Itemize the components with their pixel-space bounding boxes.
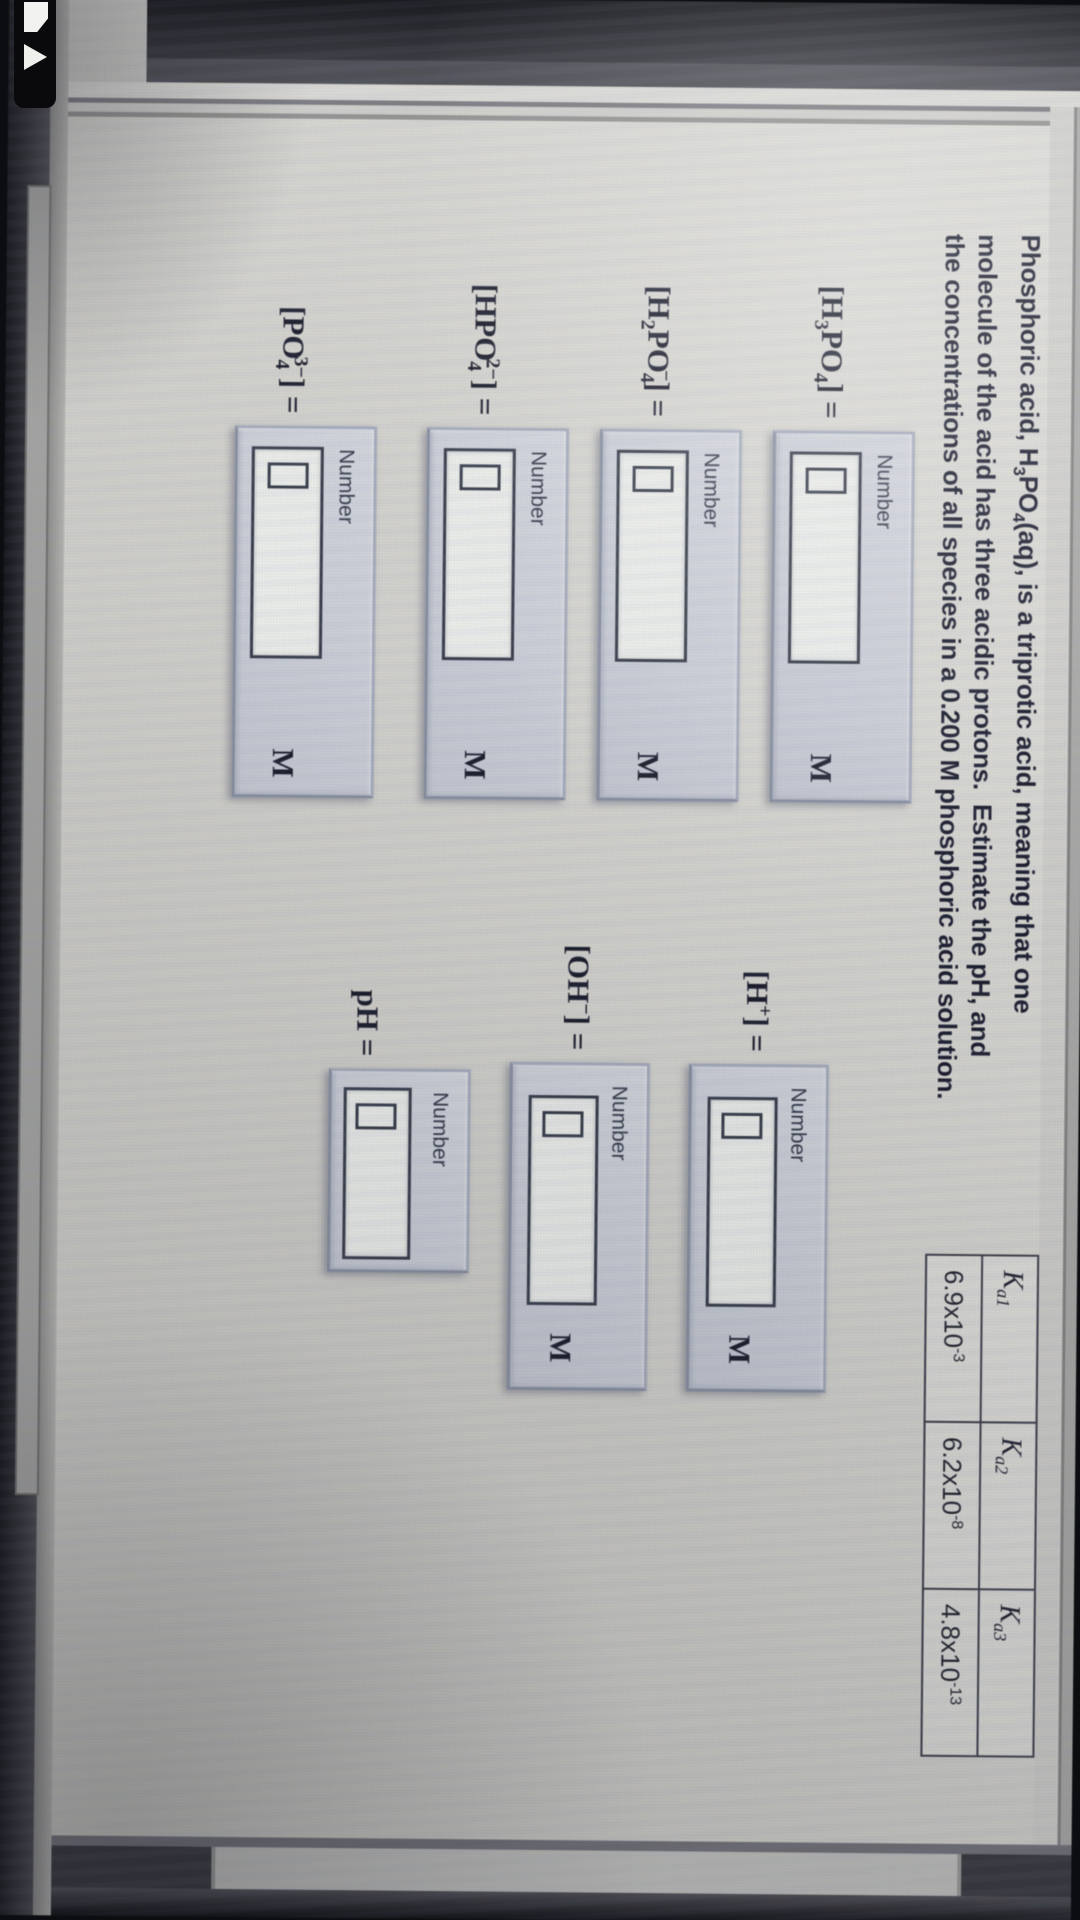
- panel-label: Number: [606, 1086, 631, 1161]
- answer-box-marker: [542, 1111, 583, 1137]
- answer-box-marker: [721, 1113, 762, 1139]
- answer-box-marker: [268, 462, 309, 488]
- answer-box-marker: [805, 468, 846, 494]
- panel-label: Number: [871, 454, 896, 529]
- left-bezel-dark: [147, 0, 1080, 67]
- answer-input-po4[interactable]: [250, 446, 324, 659]
- ka2-value: 6.2x10-8: [923, 1422, 981, 1590]
- homework-page: Phosphoric acid, H3PO4(aq), is a triprot…: [0, 0, 1080, 1920]
- ka-header-row: Ka1 Ka2 Ka3: [977, 1255, 1038, 1757]
- number-panel-hplus: Number M: [686, 1063, 829, 1392]
- panel-label: Number: [427, 1092, 452, 1167]
- formula-label-h2po4: [H2PO4−] =: [635, 167, 679, 417]
- ka2-header: Ka2: [979, 1422, 1037, 1590]
- formula-label-ph: pH =: [349, 806, 387, 1056]
- ka3-header: Ka3: [977, 1589, 1035, 1757]
- ka-table: Ka1 Ka2 Ka3 6.9x10-3 6.2x10-8 4.8x10-13: [920, 1254, 1039, 1758]
- answer-box-marker: [632, 466, 673, 492]
- answer-input-h2po4[interactable]: [615, 450, 689, 663]
- problem-text: Phosphoric acid, H3PO4(aq), is a triprot…: [928, 234, 1047, 1245]
- answer-box-marker: [355, 1103, 396, 1129]
- number-panel-ph: Number: [327, 1068, 471, 1273]
- unit-label-molar: M: [542, 1333, 578, 1363]
- number-panel-oh: Number M: [507, 1062, 650, 1391]
- answer-box-marker: [460, 464, 501, 490]
- photo-frame: Phosphoric acid, H3PO4(aq), is a triprot…: [0, 0, 1080, 1920]
- formula-label-h3po4: [H3PO4] =: [808, 169, 852, 419]
- number-panel-hpo4: Number M: [424, 427, 570, 800]
- number-panel-h3po4: Number M: [770, 430, 916, 803]
- unit-label-molar: M: [721, 1335, 757, 1365]
- unit-label-molar: M: [457, 750, 493, 780]
- moire-overlay-diagonal: [0, 0, 1080, 1920]
- formula-label-po4: [PO43−] =: [270, 163, 314, 413]
- unit-label-molar: M: [803, 754, 839, 784]
- folded-page-icon: [24, 2, 48, 32]
- vertical-scrollbar[interactable]: [211, 1847, 961, 1896]
- panel-label: Number: [698, 453, 723, 528]
- answer-input-h3po4[interactable]: [788, 451, 862, 664]
- edge-panel-handle[interactable]: [14, 0, 56, 108]
- ka-value-row: 6.9x10-3 6.2x10-8 4.8x10-13: [921, 1255, 982, 1757]
- ka1-header: Ka1: [981, 1255, 1039, 1423]
- ka1-value: 6.9x10-3: [925, 1255, 983, 1423]
- formula-label-oh: [OH−] =: [560, 800, 599, 1050]
- ka3-value: 4.8x10-13: [921, 1589, 979, 1757]
- moire-overlay-vertical: [0, 0, 1080, 1920]
- answer-input-oh[interactable]: [527, 1095, 599, 1306]
- monitor-screen: Phosphoric acid, H3PO4(aq), is a triprot…: [0, 0, 1080, 1920]
- panel-label: Number: [333, 449, 358, 524]
- number-panel-po4: Number M: [232, 425, 378, 798]
- panel-label: Number: [525, 451, 550, 526]
- answer-input-hpo4[interactable]: [442, 448, 516, 661]
- moire-overlay-horizontal: [0, 0, 1080, 1920]
- answer-input-ph[interactable]: [342, 1087, 412, 1260]
- unit-label-molar: M: [630, 752, 666, 782]
- play-triangle-icon: [24, 44, 47, 70]
- scrollbar-track-top: [961, 1854, 1071, 1897]
- formula-label-hplus: [H+] =: [739, 802, 778, 1052]
- unit-label-molar: M: [265, 748, 301, 778]
- lighting-overlay: [0, 0, 1080, 1920]
- panel-label: Number: [785, 1087, 810, 1162]
- formula-label-hpo4: [HPO42−] =: [462, 165, 506, 415]
- answer-input-hplus[interactable]: [706, 1097, 778, 1308]
- number-panel-h2po4: Number M: [597, 429, 743, 802]
